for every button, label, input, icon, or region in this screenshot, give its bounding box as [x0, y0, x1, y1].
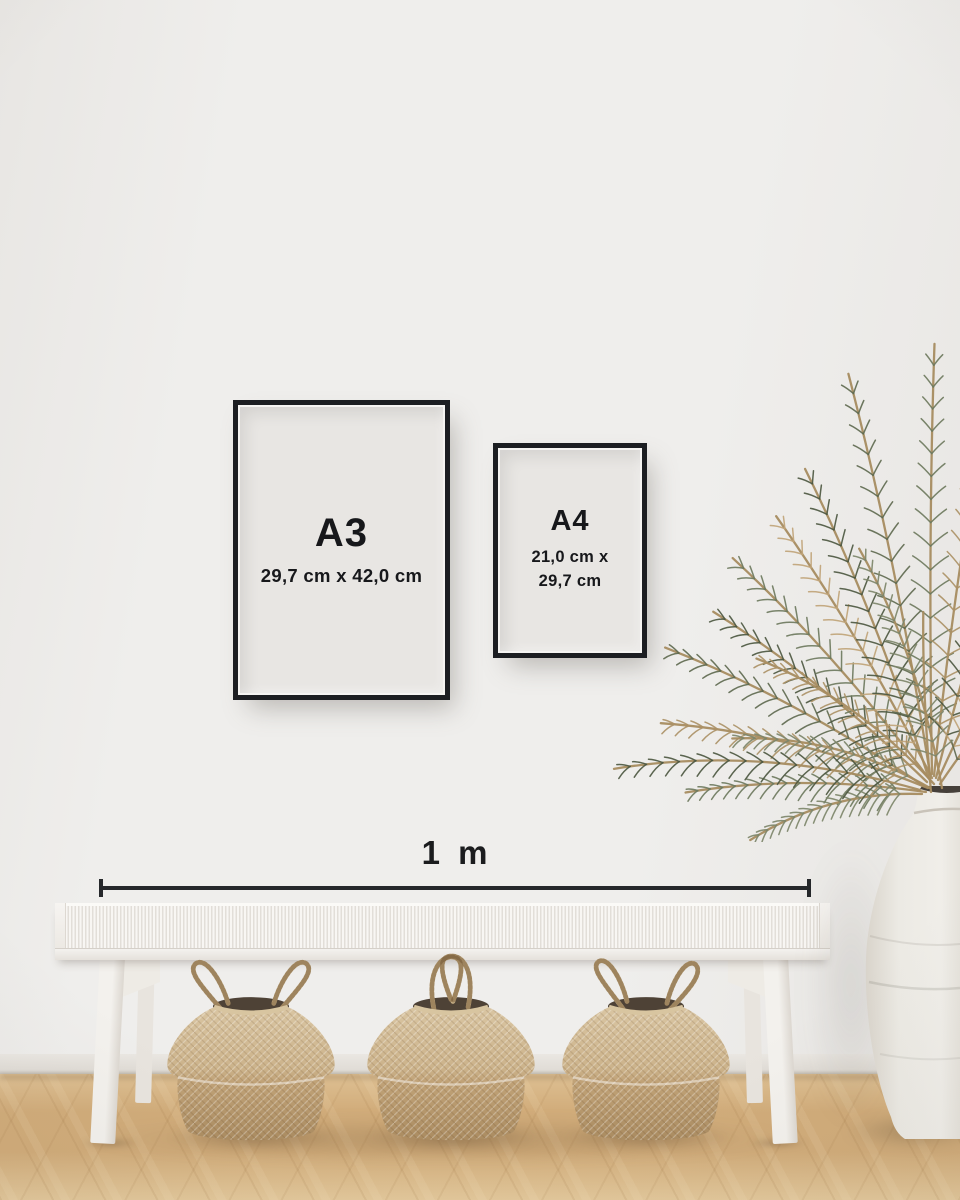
scale-bar	[100, 886, 810, 890]
a4-frame: A4 21,0 cm x 29,7 cm	[493, 443, 647, 658]
a3-frame: A3 29,7 cm x 42,0 cm	[233, 400, 450, 700]
a3-size-label: A3	[315, 513, 368, 553]
basket-left	[156, 948, 346, 1148]
vase	[856, 786, 960, 1140]
scale-bar-label: 1 m	[100, 834, 810, 872]
a3-dimensions: 29,7 cm x 42,0 cm	[261, 565, 422, 587]
scale-bar-left-tick	[99, 879, 103, 897]
basket-right	[551, 948, 741, 1148]
a4-dimensions-line2: 29,7 cm	[531, 570, 608, 594]
basket-center	[356, 948, 546, 1148]
a4-dimensions: 21,0 cm x 29,7 cm	[531, 546, 608, 594]
size-guide-mockup: A3 29,7 cm x 42,0 cm A4 21,0 cm x 29,7 c…	[0, 0, 960, 1200]
a4-dimensions-line1: 21,0 cm x	[531, 546, 608, 570]
a4-size-label: A4	[550, 507, 589, 536]
